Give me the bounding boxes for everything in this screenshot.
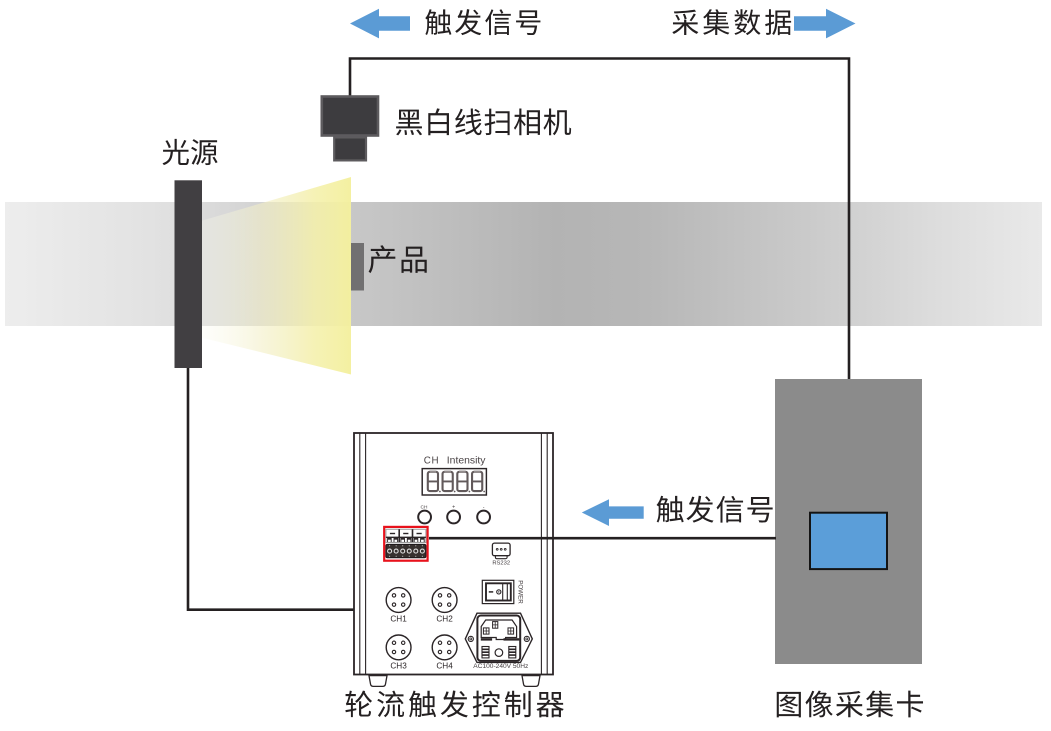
svg-text:-: - (483, 504, 485, 510)
svg-text:CH: CH (424, 456, 439, 467)
svg-text:CH1: CH1 (390, 615, 407, 624)
svg-text:Intensity: Intensity (447, 456, 487, 467)
svg-text:AC100-240V 50Hz: AC100-240V 50Hz (473, 663, 528, 670)
svg-text:CH: CH (421, 504, 428, 510)
svg-text:CH4: CH4 (436, 662, 453, 671)
svg-text:CH3: CH3 (390, 662, 407, 671)
svg-text:RS232: RS232 (492, 561, 510, 567)
svg-text:+: + (452, 504, 455, 510)
svg-text:CH2: CH2 (436, 615, 453, 624)
svg-text:POWER: POWER (516, 580, 523, 604)
